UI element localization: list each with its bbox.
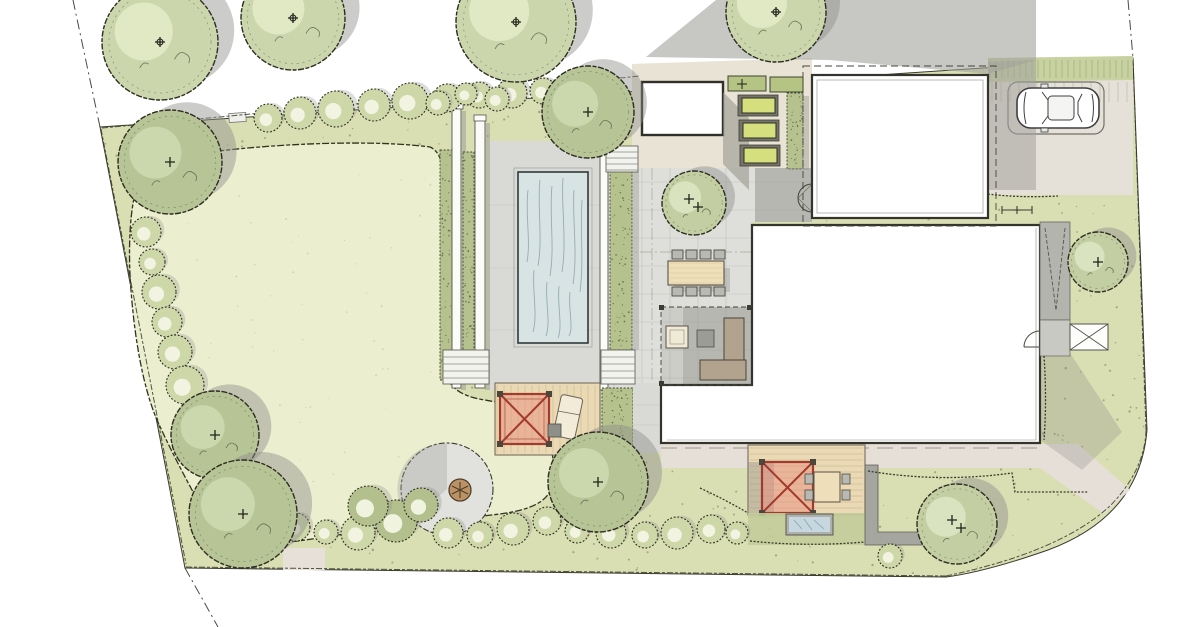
pool-hedge-east-shadow: [632, 172, 639, 350]
outdoor-table: [814, 472, 840, 502]
hedge-vertical-beds: [787, 93, 803, 169]
steps-southeast: [601, 350, 635, 384]
hedge-vertical-shadow: [803, 96, 809, 170]
deck-side-table: [548, 424, 561, 437]
pool-wall-b: [475, 119, 485, 388]
passage-landing: [1040, 320, 1070, 356]
car: [1017, 84, 1099, 132]
steps-southwest: [443, 350, 489, 384]
house-wing: [812, 75, 988, 218]
planter-beds: [742, 98, 777, 163]
swimming-pool: [518, 172, 588, 343]
site-plan-svg: [0, 0, 1200, 627]
side-passage: [1040, 222, 1070, 320]
gate-path-bottom: [283, 548, 325, 570]
site-plan-canvas: [0, 0, 1200, 627]
pool-hedge-west1: [440, 150, 452, 380]
gate-marker-top: [229, 112, 247, 122]
coffee-table: [697, 330, 714, 347]
pool-wall-a: [452, 107, 461, 388]
armchair: [666, 326, 688, 348]
outbuilding: [642, 82, 723, 135]
pool-hedge-west2: [463, 152, 474, 380]
pond-water: [789, 517, 830, 532]
